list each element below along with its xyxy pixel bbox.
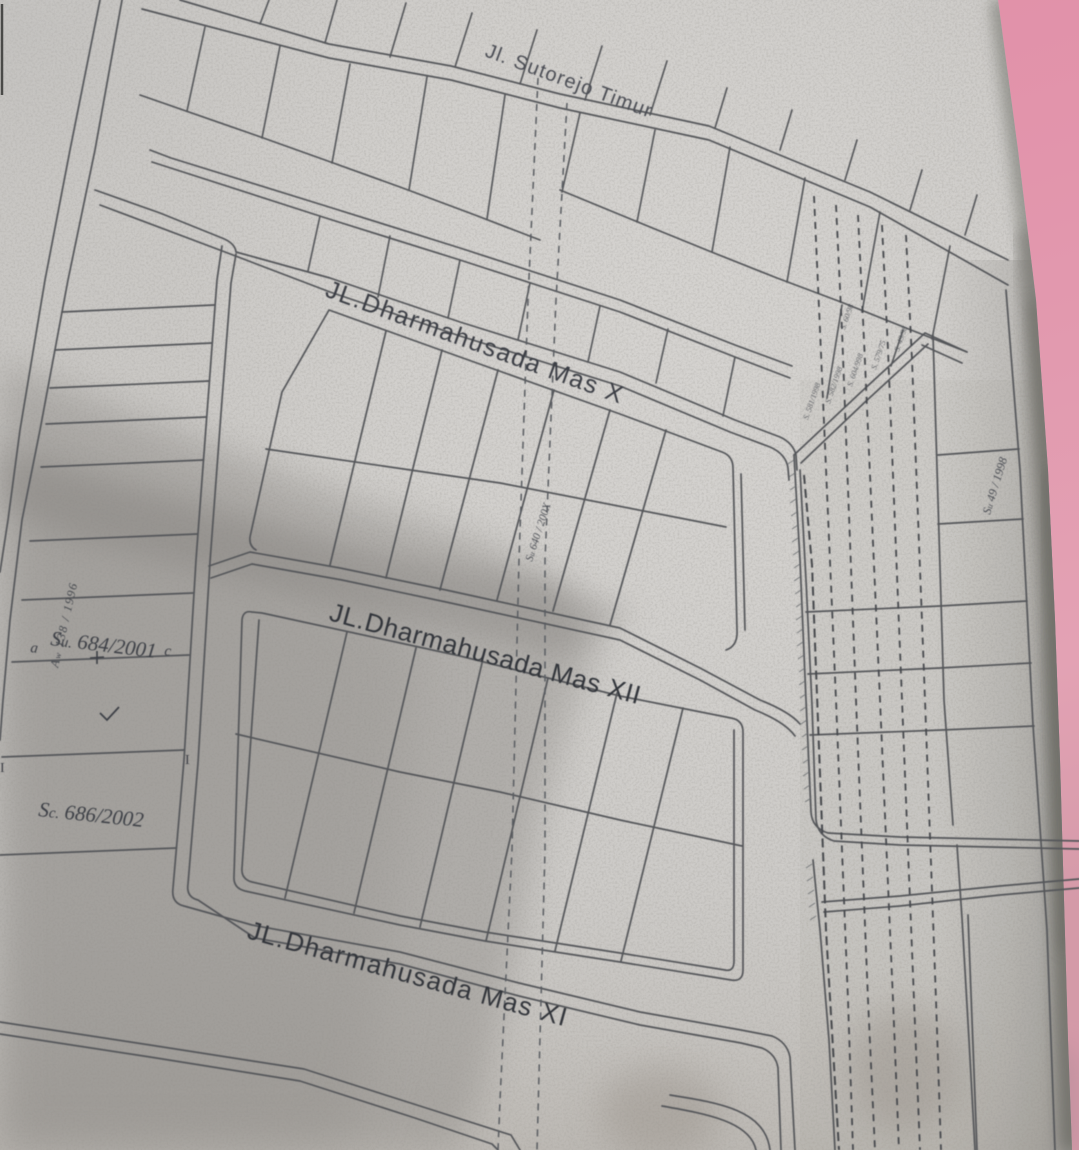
- svg-text:I: I: [185, 753, 190, 768]
- svg-text:I: I: [0, 761, 5, 776]
